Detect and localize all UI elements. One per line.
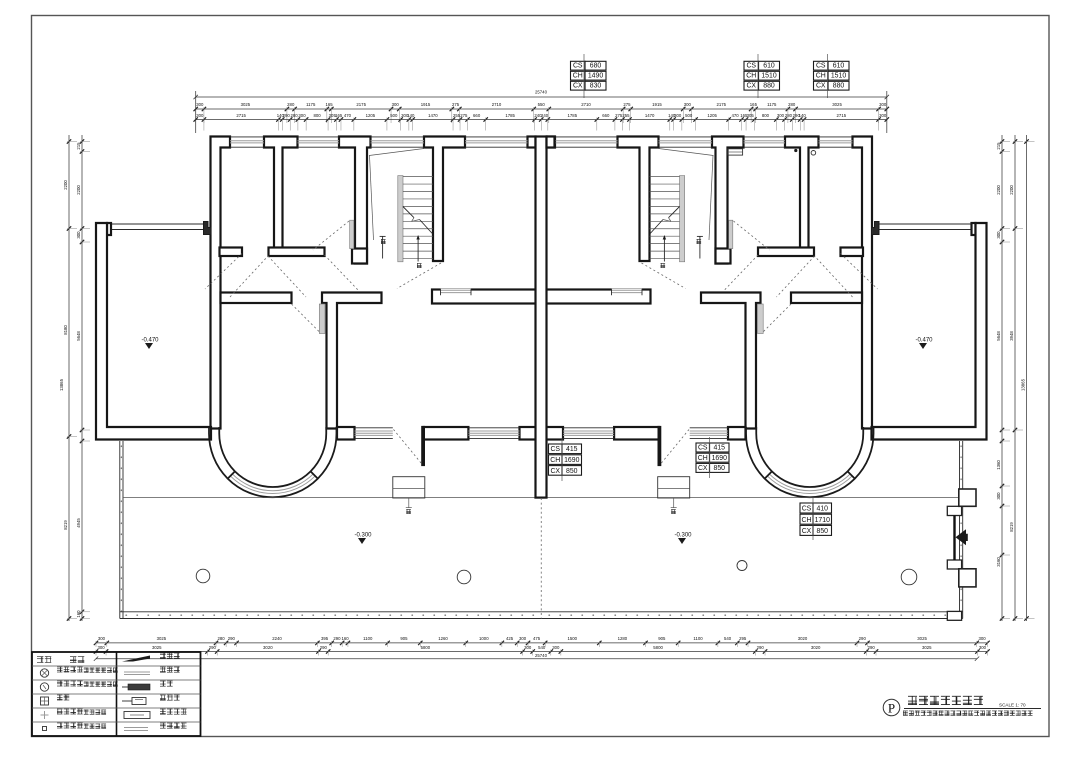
svg-text:850: 850	[566, 468, 578, 475]
svg-text:160: 160	[76, 610, 81, 618]
svg-text:1470: 1470	[428, 113, 438, 118]
svg-text:2710: 2710	[492, 102, 502, 107]
svg-text:25740: 25740	[535, 90, 548, 95]
svg-text:215: 215	[996, 142, 1001, 150]
svg-text:280: 280	[290, 113, 298, 118]
svg-text:3025: 3025	[157, 636, 167, 641]
svg-text:1690: 1690	[564, 457, 579, 464]
svg-text:1260: 1260	[438, 636, 448, 641]
svg-text:CX: CX	[746, 83, 756, 90]
svg-text:300: 300	[298, 113, 306, 118]
svg-text:275: 275	[623, 102, 631, 107]
svg-text:3025: 3025	[241, 102, 251, 107]
svg-text:1510: 1510	[761, 73, 776, 80]
svg-text:1710: 1710	[815, 517, 830, 524]
svg-text:1915: 1915	[421, 102, 431, 107]
svg-text:300: 300	[524, 645, 532, 650]
svg-text:290: 290	[320, 645, 328, 650]
svg-text:1000: 1000	[479, 636, 489, 641]
svg-text:295: 295	[739, 636, 747, 641]
svg-text:275: 275	[460, 113, 468, 118]
svg-text:2200: 2200	[76, 185, 81, 195]
svg-text:240: 240	[541, 113, 549, 118]
svg-text:550: 550	[538, 102, 546, 107]
svg-text:395: 395	[321, 636, 329, 641]
svg-text:2715: 2715	[837, 113, 847, 118]
svg-text:290: 290	[228, 636, 236, 641]
svg-text:CS: CS	[698, 445, 708, 452]
svg-text:13865: 13865	[1021, 378, 1026, 391]
svg-text:165: 165	[335, 113, 343, 118]
svg-text:SCALE 1: 70: SCALE 1: 70	[999, 703, 1026, 708]
svg-text:CX: CX	[550, 468, 560, 475]
svg-text:25740: 25740	[535, 653, 548, 658]
svg-text:1100: 1100	[693, 636, 703, 641]
svg-text:CH: CH	[802, 517, 812, 524]
svg-text:415: 415	[714, 445, 726, 452]
svg-text:300: 300	[996, 492, 1001, 500]
svg-text:305: 305	[747, 113, 755, 118]
svg-text:300: 300	[392, 102, 400, 107]
svg-text:CS: CS	[816, 63, 826, 70]
svg-text:1500: 1500	[567, 636, 577, 641]
svg-text:2200: 2200	[63, 180, 68, 190]
svg-text:880: 880	[763, 83, 775, 90]
svg-text:300: 300	[684, 102, 692, 107]
svg-text:280: 280	[785, 113, 793, 118]
svg-text:300: 300	[674, 113, 682, 118]
svg-text:165: 165	[326, 102, 334, 107]
svg-text:300: 300	[777, 113, 785, 118]
svg-text:300: 300	[996, 231, 1001, 239]
svg-text:290: 290	[859, 636, 867, 641]
svg-text:CX: CX	[816, 83, 826, 90]
svg-text:680: 680	[590, 63, 602, 70]
svg-text:880: 880	[833, 83, 845, 90]
svg-text:470: 470	[344, 113, 352, 118]
svg-text:165: 165	[750, 102, 758, 107]
svg-text:1470: 1470	[645, 113, 655, 118]
svg-text:300: 300	[76, 231, 81, 239]
svg-text:905: 905	[400, 636, 408, 641]
svg-text:2175: 2175	[717, 102, 727, 107]
svg-text:475: 475	[533, 636, 541, 641]
svg-text:540: 540	[724, 636, 732, 641]
svg-text:8219: 8219	[1009, 522, 1014, 532]
svg-text:13865: 13865	[59, 378, 64, 391]
svg-text:3025: 3025	[152, 645, 162, 650]
svg-text:2240: 2240	[272, 636, 282, 641]
svg-text:300: 300	[979, 645, 987, 650]
svg-text:850: 850	[714, 465, 726, 472]
svg-text:415: 415	[566, 446, 578, 453]
svg-text:300: 300	[196, 113, 204, 118]
svg-text:1205: 1205	[366, 113, 376, 118]
svg-text:2200: 2200	[996, 185, 1001, 195]
svg-text:610: 610	[833, 63, 845, 70]
svg-text:2175: 2175	[356, 102, 366, 107]
svg-text:280: 280	[217, 636, 225, 641]
svg-text:P: P	[888, 701, 895, 716]
svg-text:300: 300	[98, 636, 106, 641]
svg-text:8219: 8219	[63, 520, 68, 530]
svg-text:290: 290	[757, 645, 765, 650]
svg-text:280: 280	[788, 102, 796, 107]
svg-text:160: 160	[341, 636, 349, 641]
svg-text:3025: 3025	[922, 645, 932, 650]
svg-text:425: 425	[506, 636, 514, 641]
svg-text:140: 140	[407, 113, 415, 118]
svg-text:800: 800	[762, 113, 770, 118]
svg-text:140: 140	[799, 113, 807, 118]
svg-text:CS: CS	[746, 63, 756, 70]
svg-text:1100: 1100	[363, 636, 373, 641]
svg-text:1785: 1785	[505, 113, 515, 118]
svg-text:500: 500	[685, 113, 693, 118]
svg-text:300: 300	[979, 636, 987, 641]
svg-text:830: 830	[590, 83, 602, 90]
svg-text:300: 300	[196, 102, 204, 107]
svg-text:CH: CH	[573, 73, 583, 80]
svg-text:800: 800	[314, 113, 322, 118]
svg-text:470: 470	[731, 113, 739, 118]
svg-text:-0.470: -0.470	[141, 338, 159, 344]
svg-text:300: 300	[97, 645, 105, 650]
svg-text:-0.300: -0.300	[354, 533, 372, 539]
svg-text:2710: 2710	[581, 102, 591, 107]
svg-text:290: 290	[333, 636, 341, 641]
svg-text:2715: 2715	[236, 113, 246, 118]
svg-text:8180: 8180	[63, 325, 68, 335]
svg-text:300: 300	[879, 113, 887, 118]
svg-text:1915: 1915	[652, 102, 662, 107]
svg-text:280: 280	[287, 102, 295, 107]
svg-text:1785: 1785	[568, 113, 578, 118]
svg-text:1205: 1205	[707, 113, 717, 118]
svg-text:255: 255	[622, 113, 630, 118]
svg-text:290: 290	[868, 645, 876, 650]
svg-text:660: 660	[473, 113, 481, 118]
svg-text:1510: 1510	[831, 73, 846, 80]
svg-text:1280: 1280	[618, 636, 628, 641]
svg-text:540: 540	[538, 645, 546, 650]
svg-text:1175: 1175	[767, 102, 777, 107]
svg-text:290: 290	[209, 645, 217, 650]
svg-text:1690: 1690	[712, 455, 727, 462]
svg-text:500: 500	[390, 113, 398, 118]
svg-text:300: 300	[552, 645, 560, 650]
svg-text:3020: 3020	[263, 645, 273, 650]
svg-text:3025: 3025	[917, 636, 927, 641]
svg-text:-0.300: -0.300	[674, 533, 692, 539]
svg-text:610: 610	[763, 63, 775, 70]
svg-text:3020: 3020	[798, 636, 808, 641]
svg-text:1175: 1175	[306, 102, 316, 107]
svg-text:5800: 5800	[421, 645, 431, 650]
svg-text:-0.470: -0.470	[915, 338, 933, 344]
svg-text:5800: 5800	[653, 645, 663, 650]
svg-text:660: 660	[602, 113, 610, 118]
svg-text:3025: 3025	[832, 102, 842, 107]
svg-text:905: 905	[658, 636, 666, 641]
svg-text:CS: CS	[550, 446, 560, 453]
svg-text:410: 410	[817, 506, 829, 513]
svg-text:3160: 3160	[996, 557, 1001, 567]
svg-text:3948: 3948	[1009, 331, 1014, 341]
svg-text:CH: CH	[746, 73, 756, 80]
svg-text:CH: CH	[550, 457, 560, 464]
svg-text:5648: 5648	[996, 331, 1001, 341]
svg-text:4945: 4945	[76, 518, 81, 528]
svg-text:850: 850	[817, 528, 829, 535]
svg-text:300: 300	[519, 636, 527, 641]
svg-text:CH: CH	[816, 73, 826, 80]
svg-text:2200: 2200	[1009, 185, 1014, 195]
svg-text:1490: 1490	[588, 73, 603, 80]
svg-text:5648: 5648	[76, 331, 81, 341]
svg-text:1360: 1360	[996, 460, 1001, 470]
svg-text:CH: CH	[698, 455, 708, 462]
svg-text:215: 215	[76, 142, 81, 150]
svg-text:CS: CS	[573, 63, 583, 70]
svg-text:290: 290	[283, 113, 291, 118]
svg-text:3020: 3020	[811, 645, 821, 650]
svg-text:CS: CS	[802, 506, 812, 513]
svg-text:300: 300	[879, 102, 887, 107]
svg-text:CX: CX	[573, 83, 583, 90]
svg-text:CX: CX	[698, 465, 708, 472]
svg-text:275: 275	[452, 102, 460, 107]
svg-text:CX: CX	[802, 528, 812, 535]
